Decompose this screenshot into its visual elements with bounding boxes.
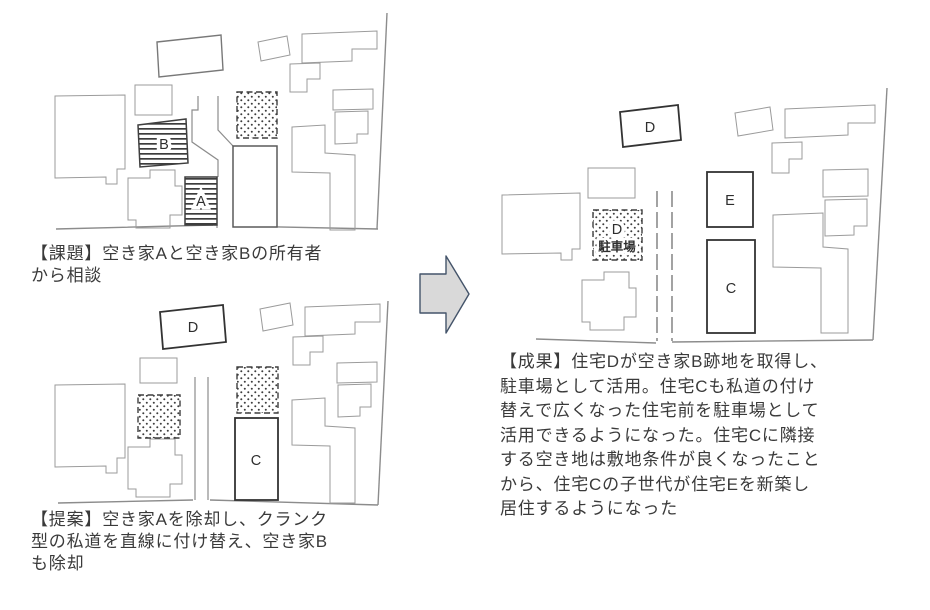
private-road-straight bbox=[195, 377, 208, 500]
house-d-unlabeled bbox=[157, 35, 223, 77]
block-right-boundary bbox=[873, 88, 887, 340]
map-result: D D 駐車場 E C bbox=[490, 83, 910, 353]
neighbor-building bbox=[305, 304, 380, 336]
neighbor-building bbox=[335, 111, 368, 144]
building-label-c: C bbox=[726, 281, 736, 297]
building-label-a: A bbox=[196, 194, 206, 210]
neighbor-building bbox=[785, 105, 875, 138]
transition-arrow-icon bbox=[413, 252, 491, 340]
neighbor-building bbox=[258, 36, 290, 61]
caption-result: 【成果】住宅Dが空き家B跡地を取得し、 駐車場として活用。住宅Cも私道の付け 替… bbox=[500, 350, 916, 522]
caption-proposal: 【提案】空き家Aを除却し、クランク 型の私道を直線に付け替え、空き家B も除却 bbox=[31, 509, 431, 575]
figure-canvas: B A 【課題】空き家Aと空き家Bの所有者 から相談 D C 【提案】空き家Aを… bbox=[0, 0, 930, 610]
neighbor-building bbox=[292, 398, 355, 503]
parking-owner-label: D bbox=[612, 222, 622, 238]
private-road-straight bbox=[657, 191, 672, 341]
neighbor-building bbox=[823, 169, 868, 197]
block-right-boundary bbox=[377, 13, 387, 229]
neighbor-building bbox=[333, 89, 373, 110]
neighbor-building bbox=[825, 199, 867, 236]
block-right-boundary bbox=[378, 301, 388, 505]
neighbor-building bbox=[338, 384, 371, 417]
vacant-lot-b-site bbox=[138, 395, 180, 438]
parking-label: 駐車場 bbox=[598, 239, 636, 254]
vacant-lot bbox=[237, 92, 277, 138]
building-label-e: E bbox=[725, 193, 735, 209]
neighbor-building bbox=[128, 439, 182, 497]
block-bottom-boundary bbox=[536, 339, 873, 343]
neighbor-building bbox=[260, 303, 293, 331]
neighbor-building bbox=[55, 95, 125, 184]
building-label-d: D bbox=[188, 320, 198, 336]
building-label-c: C bbox=[251, 453, 261, 469]
neighbor-building bbox=[140, 358, 177, 383]
neighbor-buildings bbox=[502, 105, 875, 333]
map-before: B A bbox=[30, 8, 420, 248]
neighbor-building bbox=[292, 125, 355, 230]
neighbor-building bbox=[293, 336, 323, 365]
neighbor-building bbox=[290, 63, 320, 92]
neighbor-building bbox=[773, 213, 848, 333]
neighbor-building bbox=[128, 170, 182, 228]
neighbor-building bbox=[337, 362, 377, 383]
neighbor-building bbox=[135, 85, 172, 115]
neighbor-building bbox=[735, 107, 773, 136]
caption-issue: 【課題】空き家Aと空き家Bの所有者 から相談 bbox=[31, 243, 431, 287]
neighbor-building bbox=[772, 142, 802, 173]
building-label-b: B bbox=[159, 137, 169, 153]
neighbor-building bbox=[582, 272, 636, 330]
neighbor-building bbox=[302, 31, 377, 63]
neighbor-building bbox=[55, 384, 125, 473]
house-c-unlabeled bbox=[233, 146, 277, 227]
vacant-lot bbox=[237, 367, 278, 413]
map-proposal: D C bbox=[30, 293, 420, 513]
neighbor-building bbox=[502, 193, 580, 260]
neighbor-building bbox=[588, 168, 635, 198]
building-label-d: D bbox=[645, 120, 655, 136]
